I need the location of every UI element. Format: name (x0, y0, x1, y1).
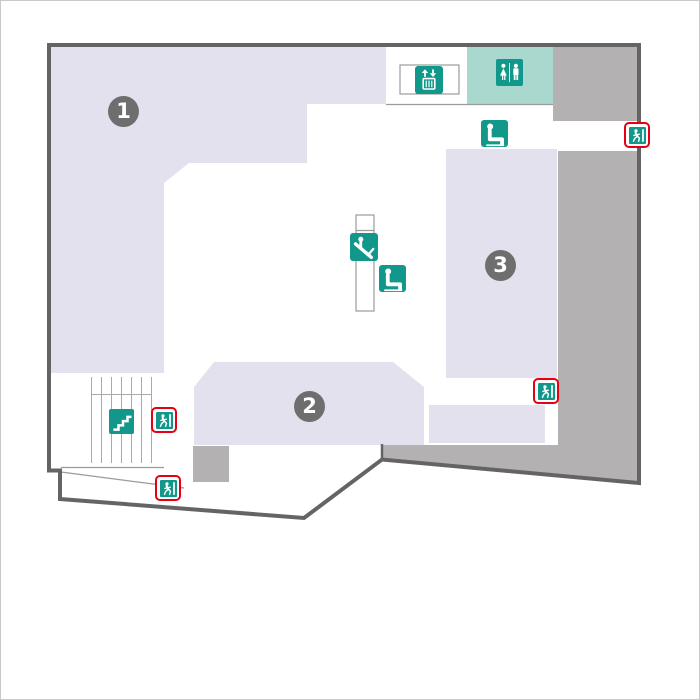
escalator-shaft (356, 215, 374, 311)
area-2-badge: 2 (294, 391, 325, 422)
toilet-icon (496, 59, 523, 86)
seat-icon (481, 120, 508, 147)
emergency-exit-icon (155, 475, 181, 501)
emergency-exit-icon (151, 407, 177, 433)
emergency-exit-icon (533, 378, 559, 404)
seat-icon (379, 265, 406, 292)
area-3-label: 3 (493, 253, 508, 277)
emergency-exit-icon (624, 122, 650, 148)
area-2-label: 2 (302, 394, 317, 418)
area-1-label: 1 (116, 99, 131, 123)
area-3-badge: 3 (485, 250, 516, 281)
escalator-icon (350, 233, 378, 261)
elevator-icon (415, 66, 443, 94)
floor-plan-canvas (1, 1, 699, 699)
area-1-badge: 1 (108, 96, 139, 127)
sales-area-1-fill (51, 47, 386, 373)
backroom-top-right-fill (553, 47, 637, 121)
stairs-icon (109, 409, 134, 434)
pillar-fill (193, 446, 229, 482)
sales-area-strip-fill (429, 405, 545, 443)
floor-map: 1 2 3 (0, 0, 700, 700)
